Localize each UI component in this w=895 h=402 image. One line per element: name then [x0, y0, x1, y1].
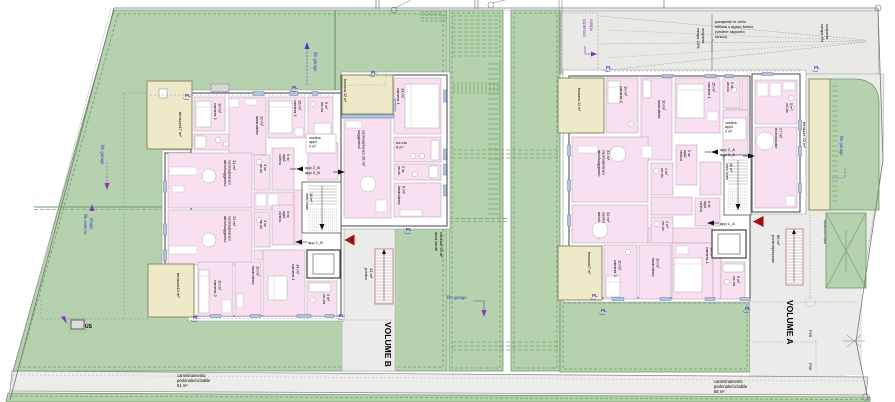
svg-text:rifugio: rifugio — [89, 218, 94, 230]
svg-text:4 m²: 4 m² — [263, 220, 267, 228]
svg-text:10 m²: 10 m² — [260, 116, 265, 127]
svg-text:10 m²: 10 m² — [624, 86, 629, 97]
svg-text:scoperta: scoperta — [701, 28, 706, 44]
svg-text:10 m²: 10 m² — [662, 100, 667, 111]
svg-text:cucina/pranzo: cucina/pranzo — [602, 150, 607, 176]
svg-text:5 m²: 5 m² — [736, 276, 740, 284]
svg-text:5 m²: 5 m² — [286, 154, 290, 162]
svg-text:lavanderia: lavanderia — [255, 116, 260, 135]
svg-text:PL: PL — [193, 315, 199, 320]
svg-text:P29: P29 — [808, 330, 813, 338]
svg-text:51 m²: 51 m² — [177, 383, 188, 388]
svg-text:4 m²: 4 m² — [665, 221, 669, 229]
svg-text:wc-via: wc-via — [322, 294, 326, 304]
svg-text:VOLUME A: VOLUME A — [785, 300, 795, 345]
svg-text:cantina: cantina — [278, 211, 282, 222]
svg-text:atrio/soggiorno: atrio/soggiorno — [223, 160, 228, 187]
svg-text:copertura: copertura — [582, 19, 587, 37]
svg-text:lavanderia: lavanderia — [657, 100, 662, 119]
svg-text:app 3_B: app 3_B — [305, 170, 320, 175]
svg-text:portico: portico — [364, 268, 369, 281]
svg-text:PL: PL — [371, 70, 377, 75]
svg-text:wc-via: wc-via — [320, 102, 324, 112]
svg-text:85 m²: 85 m² — [776, 235, 781, 246]
svg-text:16 m²: 16 m² — [729, 163, 733, 173]
svg-text:10 m²: 10 m² — [218, 103, 223, 114]
svg-text:15 m²: 15 m² — [298, 100, 303, 111]
svg-text:camera 1: camera 1 — [291, 264, 296, 281]
svg-text:PL: PL — [745, 306, 751, 311]
svg-text:PL: PL — [406, 227, 412, 232]
svg-text:lavanderia: lavanderia — [651, 258, 656, 277]
svg-text:wc-via: wc-via — [726, 82, 730, 92]
svg-text:area verde: area verde — [434, 232, 439, 252]
svg-text:10 m²: 10 m² — [256, 266, 261, 277]
svg-text:camera 1: camera 1 — [293, 100, 298, 117]
svg-text:PL: PL — [814, 65, 820, 70]
svg-text:camera 1: camera 1 — [705, 247, 710, 264]
svg-text:cucina/pranzo: cucina/pranzo — [228, 216, 233, 242]
svg-text:filo garage: filo garage — [839, 136, 844, 156]
svg-text:3 m²: 3 m² — [309, 144, 317, 148]
svg-text:5 m²: 5 m² — [687, 150, 691, 158]
svg-text:5 m²: 5 m² — [401, 166, 405, 174]
svg-text:US: US — [85, 324, 93, 330]
svg-text:15 m²: 15 m² — [712, 82, 717, 93]
svg-text:14 m²: 14 m² — [296, 264, 301, 275]
svg-text:vano scale: vano scale — [725, 163, 729, 180]
svg-text:32 m²: 32 m² — [232, 216, 237, 227]
svg-text:4 m²: 4 m² — [263, 164, 267, 172]
svg-text:camera 1: camera 1 — [396, 88, 401, 105]
svg-text:wc-via: wc-via — [396, 141, 408, 145]
svg-text:camera 1: camera 1 — [707, 82, 712, 99]
svg-text:wc-do: wc-do — [661, 221, 665, 231]
svg-text:PL: PL — [339, 313, 345, 318]
svg-text:10 m²: 10 m² — [218, 280, 223, 291]
svg-text:14 m²: 14 m² — [401, 88, 406, 99]
svg-text:27 m²: 27 m² — [779, 128, 784, 139]
svg-text:camera 2: camera 2 — [613, 260, 618, 277]
svg-text:cantina: cantina — [679, 150, 683, 161]
svg-text:app2: app2 — [683, 150, 687, 158]
svg-text:terrazza 12 m²: terrazza 12 m² — [343, 79, 347, 103]
svg-text:41 m²: 41 m² — [369, 268, 374, 279]
svg-text:wc-do: wc-do — [785, 103, 789, 113]
svg-text:atrio/soggiorno: atrio/soggiorno — [223, 216, 228, 243]
svg-text:scoperta: scoperta — [825, 24, 830, 40]
svg-text:app2: app2 — [282, 154, 286, 162]
svg-text:4 m²: 4 m² — [707, 201, 711, 209]
svg-text:PL: PL — [292, 85, 298, 90]
svg-text:filo garage: filo garage — [447, 295, 467, 300]
svg-text:5 m²: 5 m² — [730, 82, 734, 90]
svg-text:filo garage: filo garage — [100, 145, 105, 165]
svg-text:PL: PL — [592, 293, 598, 298]
svg-text:wc-via: wc-via — [732, 276, 736, 286]
svg-text:app1: app1 — [703, 201, 707, 209]
svg-text:atrio/soggiorno: atrio/soggiorno — [597, 150, 602, 177]
svg-text:5 m²: 5 m² — [789, 103, 793, 111]
svg-text:56 m²: 56 m² — [714, 389, 725, 394]
svg-text:VOLUME B: VOLUME B — [383, 322, 393, 367]
svg-text:terrazza14 m²: terrazza14 m² — [176, 273, 181, 298]
svg-text:app 1_A: app 1_A — [720, 221, 735, 226]
svg-text:3 m²: 3 m² — [725, 129, 733, 133]
svg-text:filo garage: filo garage — [313, 52, 318, 72]
svg-text:wc-do: wc-do — [259, 220, 263, 229]
svg-text:cantina: cantina — [699, 201, 703, 212]
svg-text:32 m²: 32 m² — [606, 212, 611, 223]
svg-text:cucina/pranzo 28 m²: cucina/pranzo 28 m² — [362, 130, 367, 167]
svg-text:PL: PL — [606, 65, 612, 70]
svg-text:portico/piazzale: portico/piazzale — [771, 235, 776, 264]
svg-text:cucina/pranzo: cucina/pranzo — [228, 160, 233, 186]
svg-text:terrazza 14 m²: terrazza 14 m² — [577, 88, 581, 112]
svg-text:camera 2: camera 2 — [213, 280, 218, 297]
svg-text:rampa: rampa — [589, 19, 594, 32]
svg-text:app1: app1 — [282, 211, 286, 219]
svg-text:cantina: cantina — [278, 154, 282, 165]
svg-text:terrazza17 m²: terrazza17 m² — [587, 252, 591, 275]
svg-text:6 m²: 6 m² — [396, 145, 404, 149]
svg-text:5 m²: 5 m² — [326, 294, 330, 302]
svg-text:P30: P30 — [808, 363, 813, 371]
svg-text:filo esterno: filo esterno — [83, 214, 88, 235]
svg-text:app 1_B: app 1_B — [308, 240, 323, 245]
svg-text:10 m²: 10 m² — [618, 260, 623, 271]
svg-text:terrazza 22 m²: terrazza 22 m² — [802, 122, 807, 148]
svg-text:PL: PL — [601, 308, 607, 313]
svg-text:9 m²: 9 m² — [402, 186, 407, 195]
svg-text:16 m²: 16 m² — [309, 193, 313, 203]
svg-text:5 m²: 5 m² — [324, 102, 328, 110]
svg-text:copertura in legno: copertura in legno — [823, 220, 827, 244]
svg-text:camera 2: camera 2 — [619, 86, 624, 103]
svg-text:lavanderia: lavanderia — [251, 266, 256, 285]
svg-text:rampa 5%: rampa 5% — [820, 24, 825, 43]
svg-text:PL: PL — [185, 93, 191, 98]
svg-text:camera 2: camera 2 — [213, 103, 218, 120]
svg-text:wc-do: wc-do — [660, 168, 664, 178]
svg-text:wc-do: wc-do — [259, 164, 263, 173]
svg-text:terrazza17 m²: terrazza17 m² — [178, 112, 183, 137]
svg-text:lavanderia: lavanderia — [397, 186, 402, 205]
svg-text:wc-do: wc-do — [397, 166, 401, 175]
svg-text:rampa 15%: rampa 15% — [696, 28, 701, 49]
svg-text:vano scale: vano scale — [305, 193, 309, 210]
svg-text:app 3_A: app 3_A — [720, 152, 735, 157]
svg-text:4 m²: 4 m² — [286, 211, 290, 219]
svg-text:monolocale: monolocale — [774, 128, 779, 149]
svg-text:31 m²: 31 m² — [232, 160, 237, 171]
svg-text:10 m²: 10 m² — [656, 258, 661, 269]
svg-text:4 m²: 4 m² — [664, 168, 668, 176]
svg-text:fonico): fonico) — [715, 34, 728, 39]
svg-text:soggiorno/: soggiorno/ — [357, 130, 362, 150]
svg-text:comune 93 m²: comune 93 m² — [439, 232, 444, 258]
